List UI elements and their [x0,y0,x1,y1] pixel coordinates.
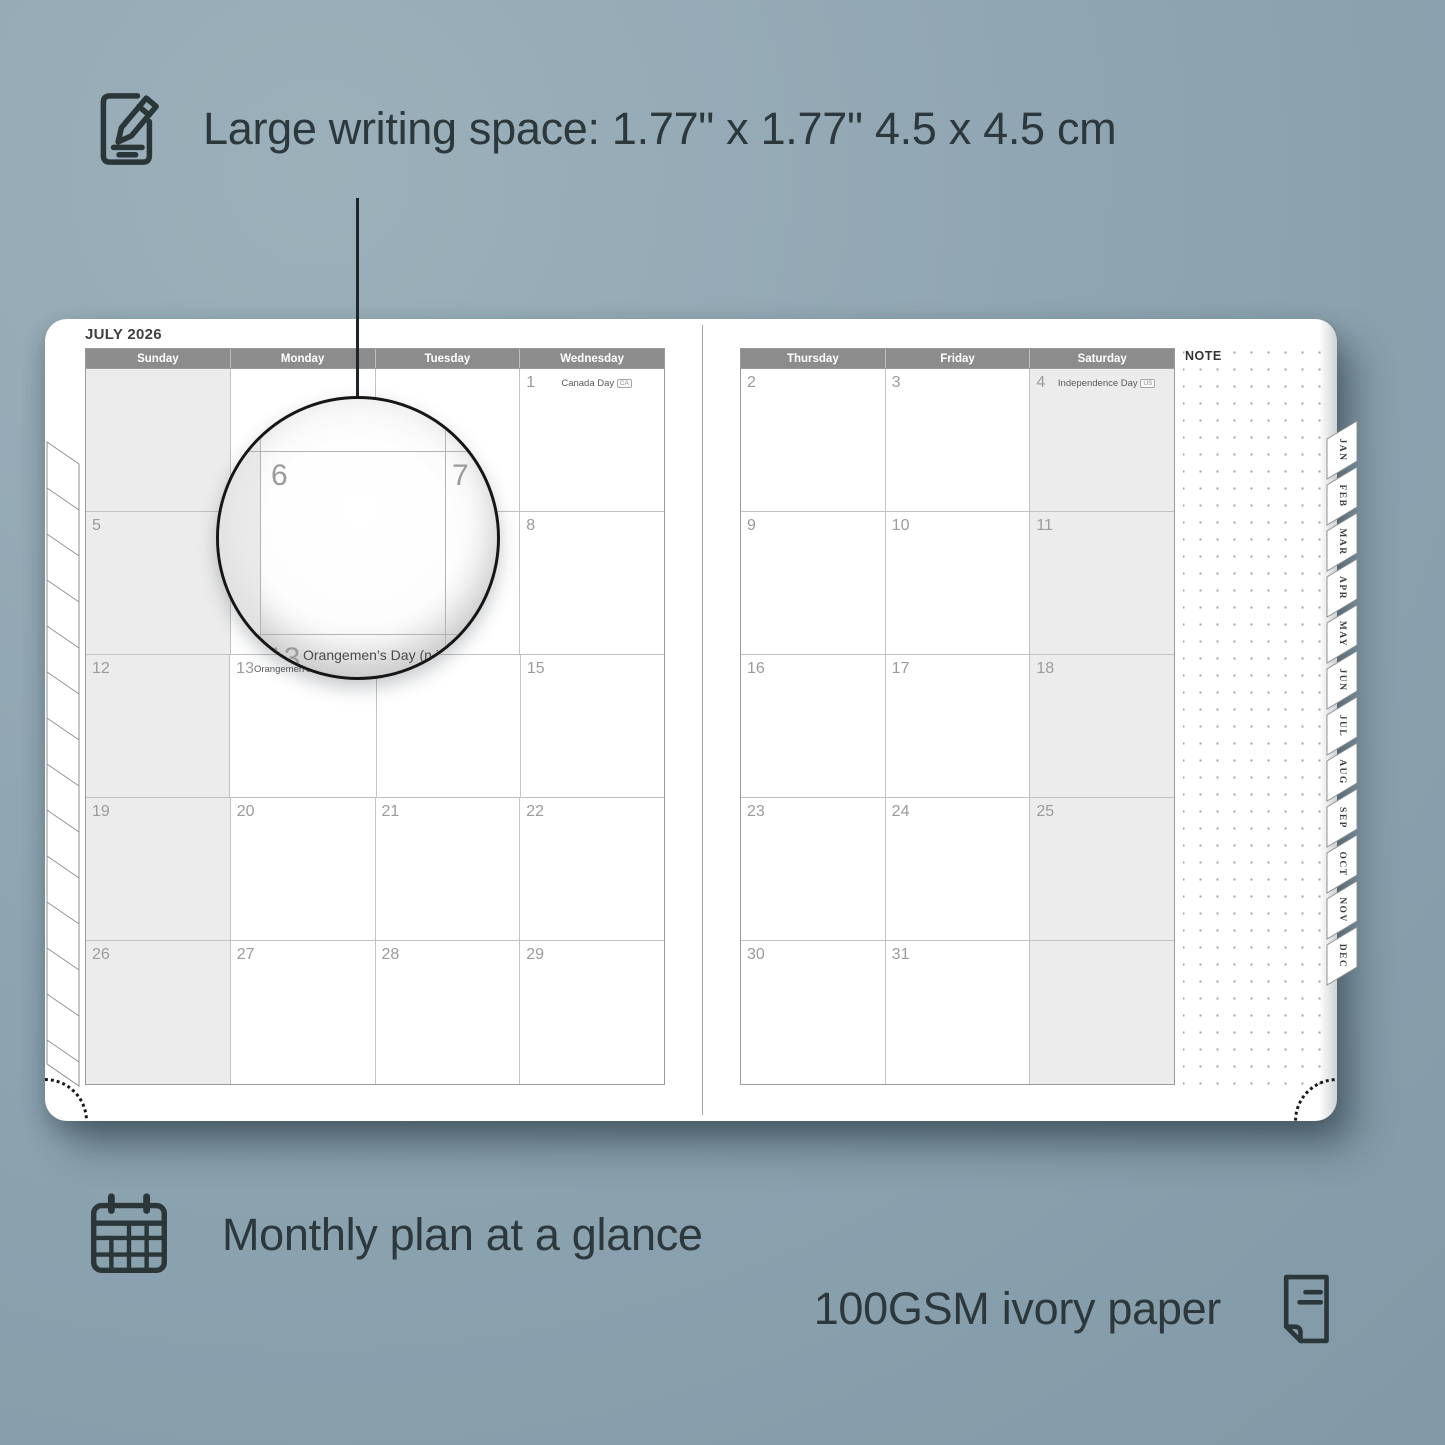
day-header: Tuesday [376,349,521,368]
month-tab-label: JAN [1337,439,1347,462]
day-number: 19 [92,803,110,821]
calendar-day-cell: 12 [86,655,230,798]
calendar-week-row: 161718 [741,655,1174,798]
day-number: 24 [892,803,910,821]
country-badge: US [1140,379,1155,388]
day-header: Wednesday [520,349,664,368]
day-number: 23 [747,803,765,821]
callout-line [356,198,359,400]
feature-writing-space-label: Large writing space: 1.77" x 1.77" 4.5 x… [203,103,1116,155]
calendar-day-cell: 5 [86,512,231,655]
calendar-day-cell: 28 [376,941,521,1084]
calendar-day-cell: 10 [886,512,1031,655]
calendar-day-cell: 14 [377,655,521,798]
calendar-week-row: 91011 [741,512,1174,655]
day-header: Sunday [86,349,231,368]
day-header: Monday [231,349,376,368]
feature-monthly-plan: Monthly plan at a glance [80,1182,703,1288]
left-page-tab-edges [46,439,80,1091]
day-number: 8 [526,517,535,535]
calendar-day-cell: 17 [886,655,1031,798]
calendar-day-cell [86,369,231,512]
holiday-label: Independence Day US [1045,378,1168,389]
calendar-day-cell: 1Canada Day CA [520,369,664,512]
magnified-grid-line [445,399,446,677]
feature-paper: 100GSM ivory paper [814,1262,1345,1356]
month-tab-label: SEP [1337,807,1347,829]
day-number: 21 [382,803,400,821]
day-number: 20 [237,803,255,821]
calendar-day-cell: 15 [521,655,664,798]
day-header: Friday [886,349,1031,368]
month-tab-label: APR [1337,576,1347,600]
calendar-week-row: 232425 [741,798,1174,941]
calendar-day-cell: 4Independence Day US [1030,369,1174,512]
country-badge: UK [451,650,472,663]
country-badge: CA [617,379,632,388]
month-tab-label: MAR [1337,528,1347,555]
day-number: 28 [382,946,400,964]
note-label: NOTE [1185,348,1230,365]
calendar-grid: 234Independence Day US910111617182324253… [740,368,1175,1085]
calendar-week-row: 26272829 [86,941,664,1084]
magnified-day-number: 13 [267,642,300,676]
day-number: 11 [1036,517,1053,535]
day-number: 29 [526,946,544,964]
calendar-day-cell: 31 [886,941,1031,1084]
calendar-day-cell: 30 [741,941,886,1084]
calendar-icon [80,1182,178,1288]
month-tab-label: DEC [1337,944,1347,969]
calendar-day-cell: 8 [520,512,664,655]
day-number: 31 [892,946,910,964]
magnified-grid-line [219,634,497,635]
calendar-day-cell: 29 [520,941,664,1084]
magnified-day-number: 6 [271,459,288,493]
day-number: 4 [1036,374,1045,392]
day-number: 25 [1036,803,1054,821]
calendar-day-cell: 24 [886,798,1031,941]
calendar-day-cell: 20 [231,798,376,941]
day-number: 5 [92,517,101,535]
right-calendar-page: ThursdayFridaySaturday234Independence Da… [740,348,1175,1085]
magnified-holiday-label: Orangemen’s Day (n.i.) UK [303,647,472,663]
month-tab-label: FEB [1337,485,1347,508]
month-tab-label: MAY [1337,621,1347,647]
magnified-weekend-shading [219,399,260,677]
day-number: 1 [526,374,535,392]
month-tab-rail: JANFEBMARAPRMAYJUNJULAUGSEPOCTNOVDEC [1325,417,1365,997]
calendar-week-row: 234Independence Day US [741,369,1174,512]
magnified-day-number: 7 [452,459,469,493]
magnifier-circle: 6 7 13 Orangemen’s Day (n.i.) UK [216,396,500,680]
product-image: Large writing space: 1.77" x 1.77" 4.5 x… [0,0,1445,1445]
calendar-day-cell: 25 [1030,798,1174,941]
calendar-day-cell: 3 [886,369,1031,512]
month-tab-label: JUL [1337,715,1347,737]
day-number: 3 [892,374,901,392]
day-number: 2 [747,374,756,392]
calendar-day-cell [1030,941,1174,1084]
feature-monthly-plan-label: Monthly plan at a glance [222,1209,703,1261]
day-number: 18 [1036,660,1054,678]
calendar-week-row: 19202122 [86,798,664,941]
month-title: JULY 2026 [85,326,162,343]
day-number: 15 [527,660,545,678]
calendar-day-cell: 22 [520,798,664,941]
calendar-day-cell: 2 [741,369,886,512]
calendar-day-cell: 26 [86,941,231,1084]
paper-icon [1261,1262,1345,1356]
note-dot-grid: NOTE [1183,348,1333,1085]
feature-writing-space: Large writing space: 1.77" x 1.77" 4.5 x… [85,78,1116,180]
day-number: 22 [526,803,544,821]
calendar-day-cell: 21 [376,798,521,941]
day-number: 17 [892,660,910,678]
pencil-note-icon [85,78,177,180]
feature-paper-label: 100GSM ivory paper [814,1283,1221,1335]
holiday-label: Canada Day CA [535,378,658,389]
calendar-day-cell: 19 [86,798,231,941]
day-number: 12 [92,660,110,678]
calendar-day-cell: 18 [1030,655,1174,798]
calendar-day-cell: 9 [741,512,886,655]
day-number: 16 [747,660,765,678]
month-tab-label: OCT [1337,851,1347,876]
day-number: 30 [747,946,765,964]
corner-stitch-left [45,1075,91,1121]
month-tab-label: AUG [1337,759,1347,785]
day-header-row: ThursdayFridaySaturday [740,348,1175,368]
month-tab-label: NOV [1337,897,1347,923]
calendar-day-cell: 27 [231,941,376,1084]
calendar-day-cell: 16 [741,655,886,798]
day-number: 27 [237,946,255,964]
day-number: 9 [747,517,756,535]
day-header-row: SundayMondayTuesdayWednesday [85,348,665,368]
day-number: 10 [892,517,910,535]
page-edge-band [47,442,79,1086]
page-spine [702,325,703,1115]
magnified-grid-line [219,451,497,452]
corner-stitch-right [1291,1075,1337,1121]
day-header: Thursday [741,349,886,368]
magnified-grid-line [260,399,261,677]
calendar-day-cell: 11 [1030,512,1174,655]
calendar-day-cell: 23 [741,798,886,941]
day-header: Saturday [1030,349,1174,368]
month-tab-label: JUN [1337,669,1347,692]
calendar-week-row: 3031 [741,941,1174,1084]
day-number: 26 [92,946,110,964]
